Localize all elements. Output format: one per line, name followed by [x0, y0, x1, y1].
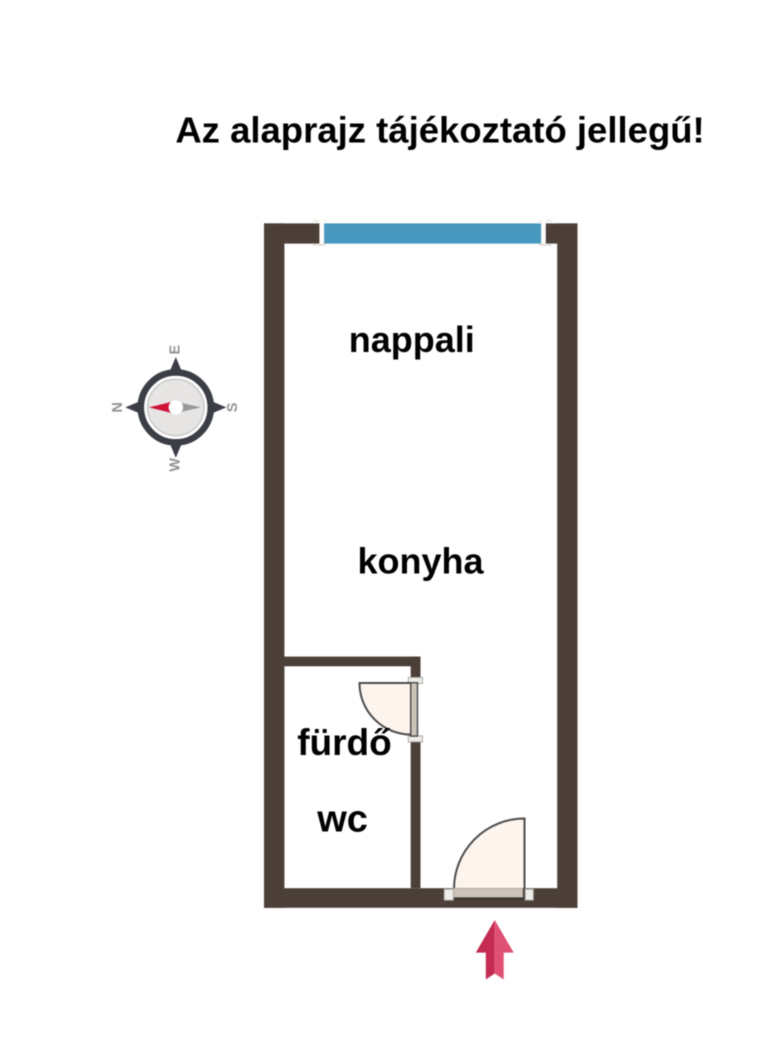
svg-text:S: S: [225, 402, 241, 412]
svg-text:E: E: [168, 344, 184, 354]
svg-text:konyha: konyha: [357, 541, 484, 582]
svg-text:nappali: nappali: [349, 319, 475, 360]
svg-text:Az alaprajz tájékoztató jelleg: Az alaprajz tájékoztató jellegű!: [175, 109, 704, 150]
svg-text:fürdő: fürdő: [297, 722, 392, 763]
svg-text:N: N: [110, 402, 126, 412]
svg-text:W: W: [168, 458, 184, 472]
svg-text:wc: wc: [316, 799, 368, 841]
